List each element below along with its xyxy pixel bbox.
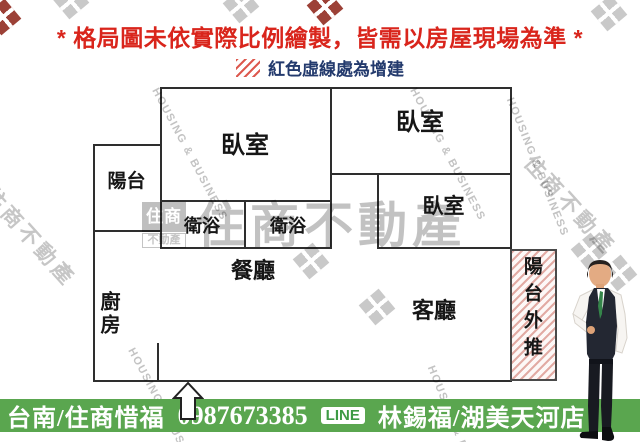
legend: 紅色虛線處為增建 bbox=[0, 55, 640, 80]
room-label-balcony-extension: 陽台外推 bbox=[520, 256, 541, 364]
line-badge: LINE bbox=[321, 407, 365, 424]
room-label-bedroom-3: 臥室 bbox=[377, 195, 510, 218]
room-label-bathroom-2: 衛浴 bbox=[246, 217, 330, 237]
banner-office-text: 台南/住商惜福 bbox=[7, 398, 165, 433]
wall bbox=[93, 144, 162, 146]
wall bbox=[93, 380, 512, 382]
wall bbox=[157, 343, 159, 382]
room-label-living: 客廳 bbox=[374, 299, 494, 323]
legend-label: 紅色虛線處為增建 bbox=[268, 55, 404, 80]
brand-logo-tile-icon bbox=[53, 0, 90, 19]
watermark-cjk: 住商不動產 bbox=[518, 148, 624, 261]
agent-photo bbox=[566, 256, 640, 442]
room-label-balcony: 陽台 bbox=[93, 172, 160, 193]
watermark-cjk: 住商不動產 bbox=[0, 180, 84, 293]
room-label-bedroom-2: 臥室 bbox=[330, 110, 510, 136]
wall bbox=[330, 173, 512, 175]
red-hatch-icon bbox=[236, 59, 260, 77]
wall bbox=[377, 247, 512, 249]
banner-agent-store: 林錫福/湖美天河店 bbox=[378, 398, 586, 433]
wall bbox=[93, 230, 162, 232]
room-label-bathroom-1: 衛浴 bbox=[160, 217, 244, 237]
contact-banner: 台南/住商惜福 0987673385 LINE 林錫福/湖美天河店 bbox=[0, 399, 640, 432]
room-label-kitchen: 廚房 bbox=[97, 291, 119, 337]
room-label-bedroom-1: 臥室 bbox=[160, 133, 330, 159]
room-label-dining: 餐廳 bbox=[193, 259, 313, 283]
disclaimer-text: * 格局圖未依實際比例繪製，皆需以房屋現場為準 * bbox=[0, 19, 640, 53]
watermark-en: HOUSING & BUSINESS bbox=[504, 96, 571, 238]
entrance-arrow-icon bbox=[172, 381, 204, 421]
wall bbox=[160, 200, 332, 202]
flyer-canvas: * 格局圖未依實際比例繪製，皆需以房屋現場為準 * 紅色虛線處為增建 HOUSI… bbox=[0, 0, 640, 442]
wall bbox=[160, 87, 512, 89]
